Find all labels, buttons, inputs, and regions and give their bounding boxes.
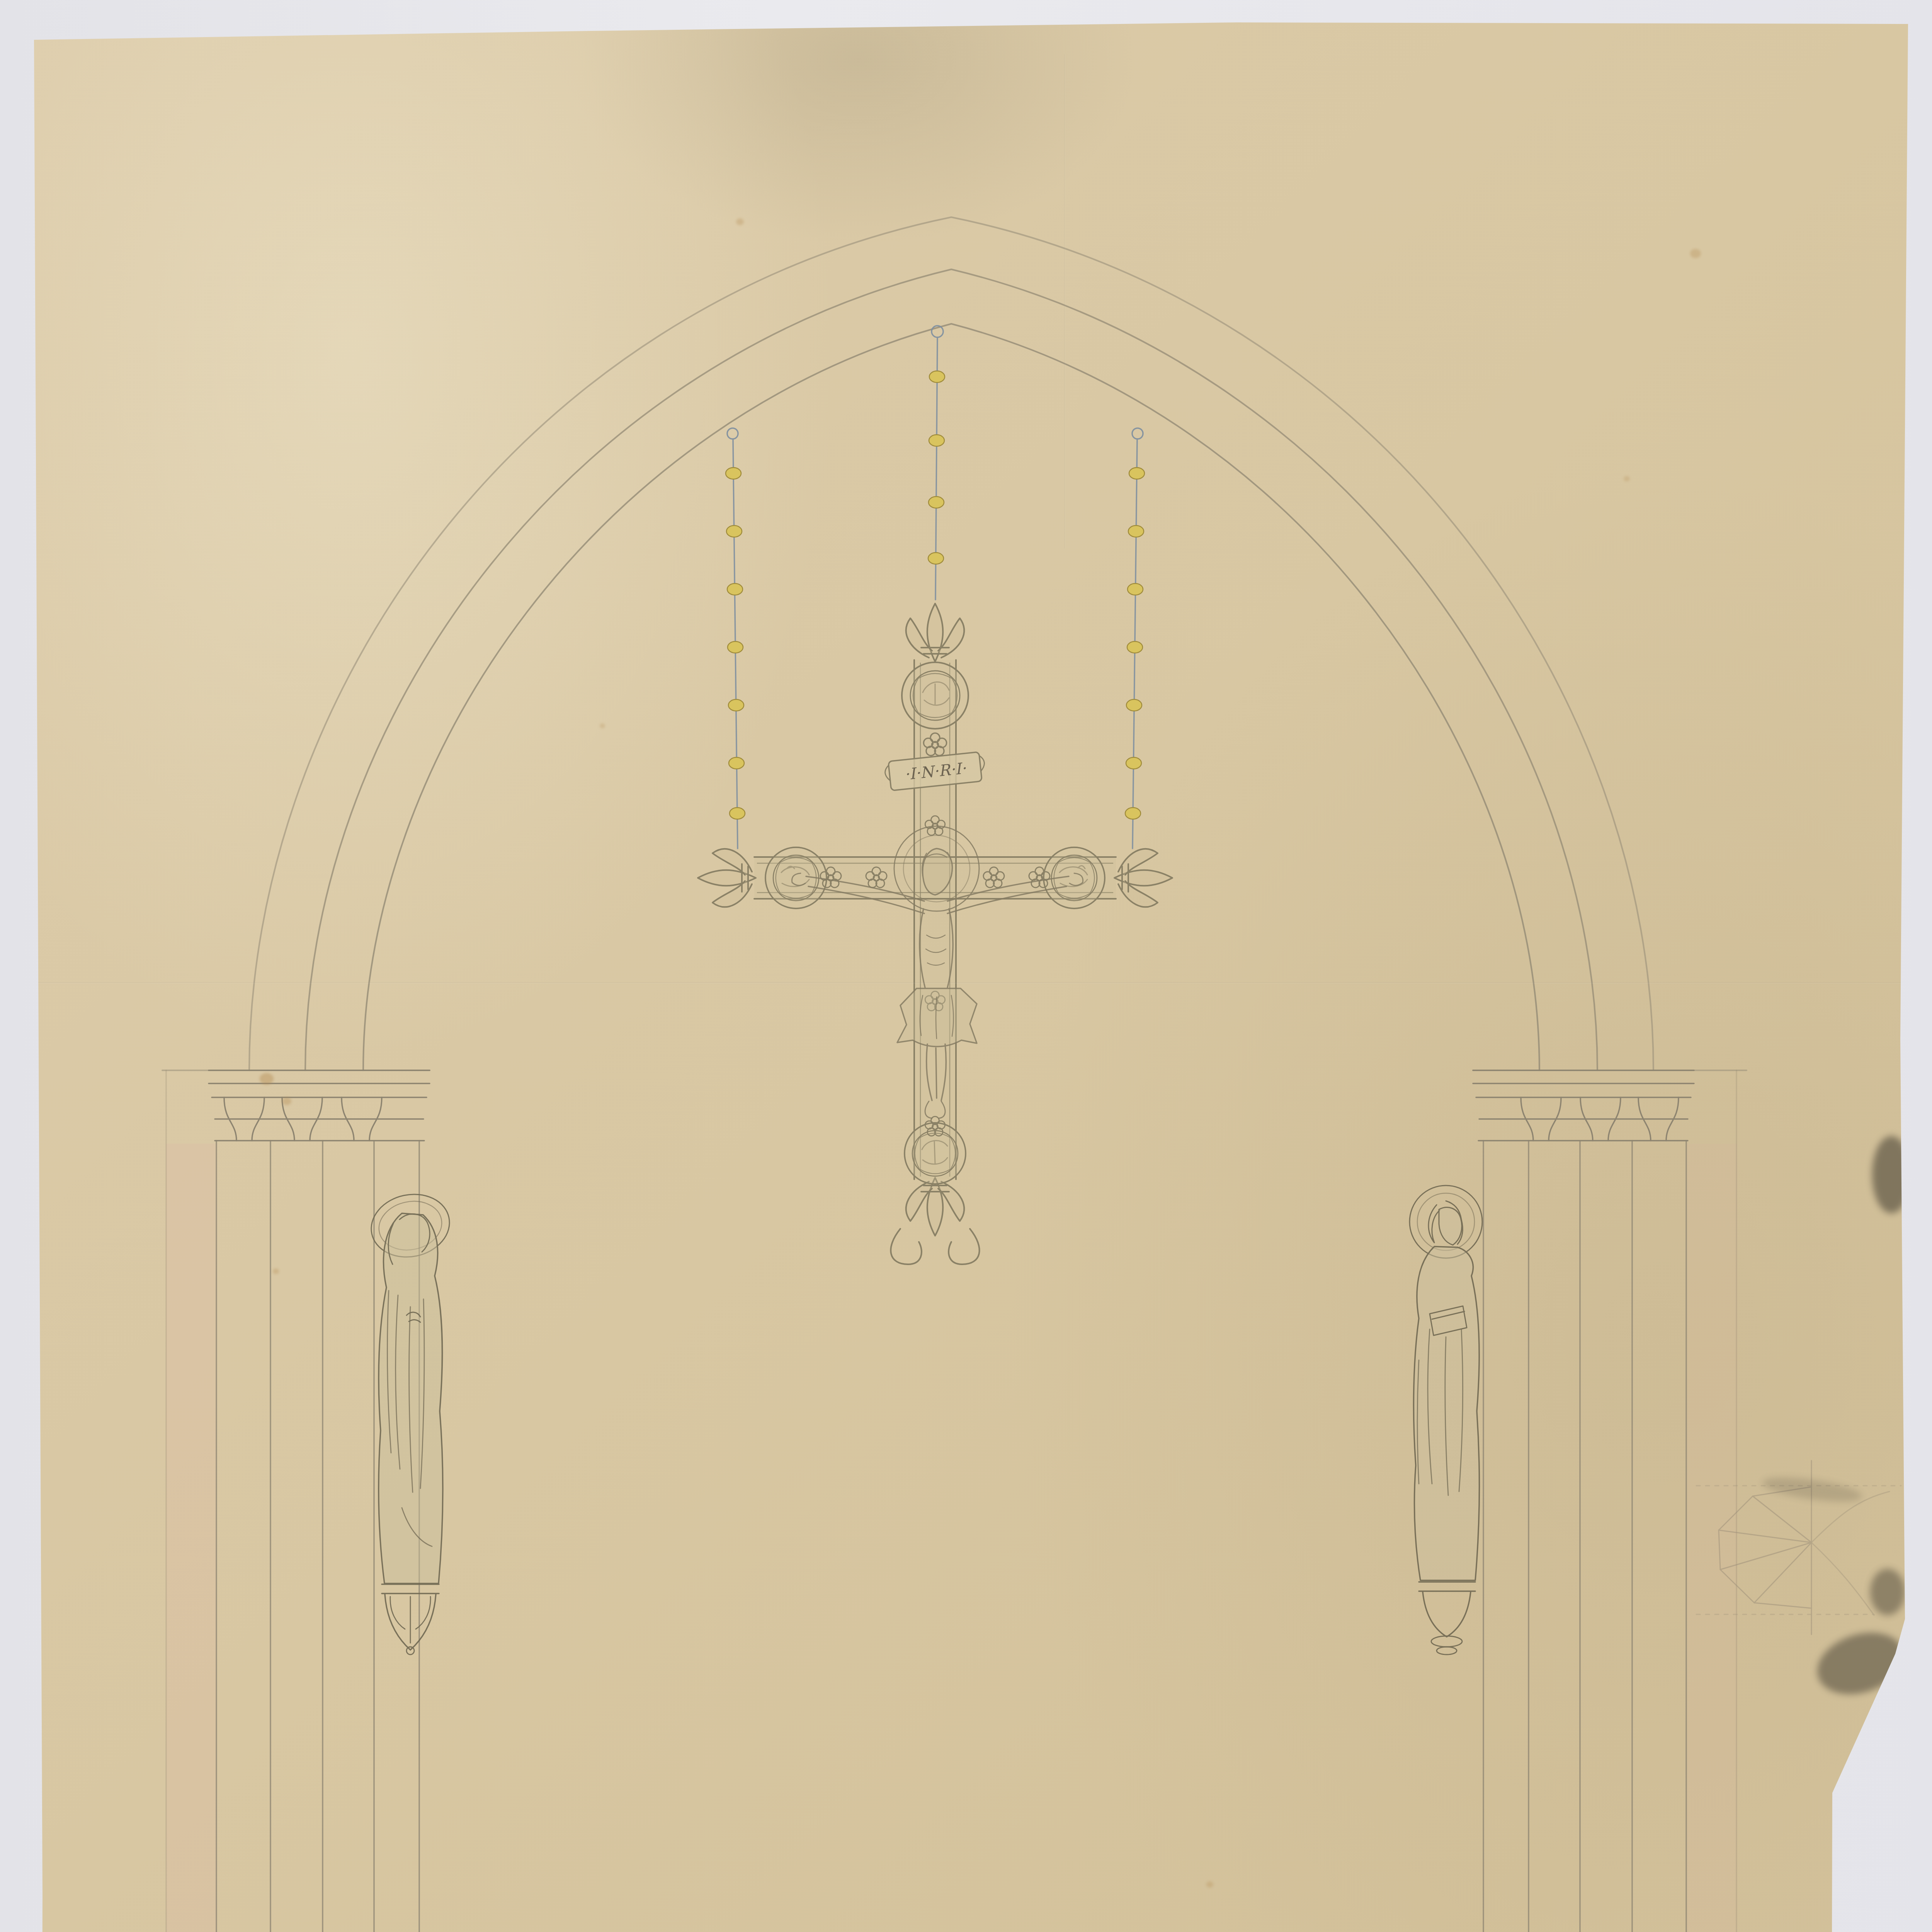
foxing-spot (1206, 1881, 1213, 1888)
statue-saint-john (1410, 1185, 1482, 1655)
inri-banderole: ·I·N·R·I· (884, 752, 986, 791)
scanned-document: ·I·N·R·I· (0, 0, 1932, 1932)
foxing-spot (1690, 249, 1701, 258)
ink-smudge (1870, 1569, 1905, 1615)
foxing-spot (600, 723, 605, 728)
fold-crease-vertical-2 (1064, 54, 1065, 549)
architectural-drawing: ·I·N·R·I· (0, 0, 1932, 1932)
foxing-spot (1624, 476, 1630, 481)
foxing-spot (736, 218, 744, 225)
triumphal-cross: ·I·N·R·I· (698, 604, 1172, 1264)
foxing-spot (260, 1073, 274, 1085)
foxing-spot (273, 1269, 279, 1274)
ink-smudge (1872, 1136, 1911, 1213)
foxing-spot (282, 1097, 291, 1105)
statue-virgin (366, 1187, 456, 1655)
drawing-sheet: ·I·N·R·I· (0, 0, 1932, 1932)
fold-crease-horizontal (37, 982, 1903, 983)
